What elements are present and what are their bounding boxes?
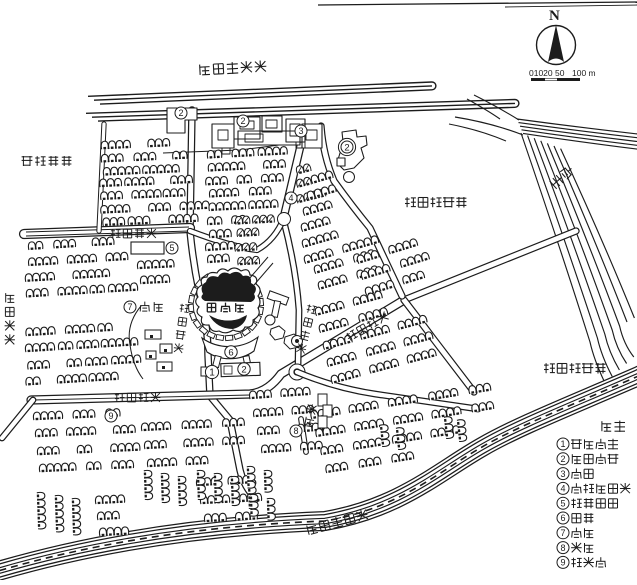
svg-text:4: 4: [288, 193, 293, 203]
svg-text:2: 2: [241, 364, 246, 375]
svg-text:4: 4: [560, 484, 565, 494]
svg-text:8: 8: [293, 426, 298, 436]
svg-text:1: 1: [209, 368, 215, 379]
svg-text:7: 7: [560, 528, 565, 538]
svg-text:N: N: [549, 8, 560, 24]
svg-text:5: 5: [560, 498, 565, 508]
svg-text:2: 2: [560, 454, 565, 464]
svg-text:6: 6: [560, 513, 565, 523]
svg-text:7: 7: [127, 302, 132, 312]
svg-text:3: 3: [298, 126, 303, 136]
svg-text:2: 2: [240, 116, 245, 126]
svg-text:2: 2: [178, 108, 183, 118]
svg-text:5: 5: [169, 243, 174, 253]
svg-text:6: 6: [228, 347, 233, 358]
svg-text:9: 9: [108, 411, 113, 421]
svg-text:1: 1: [560, 439, 565, 449]
svg-text:8: 8: [560, 543, 565, 553]
svg-text:3: 3: [560, 469, 565, 479]
svg-text:2: 2: [344, 142, 349, 153]
svg-text:9: 9: [560, 558, 565, 568]
svg-text:01020 50: 01020 50: [529, 68, 565, 78]
svg-text:100 m: 100 m: [572, 68, 596, 78]
